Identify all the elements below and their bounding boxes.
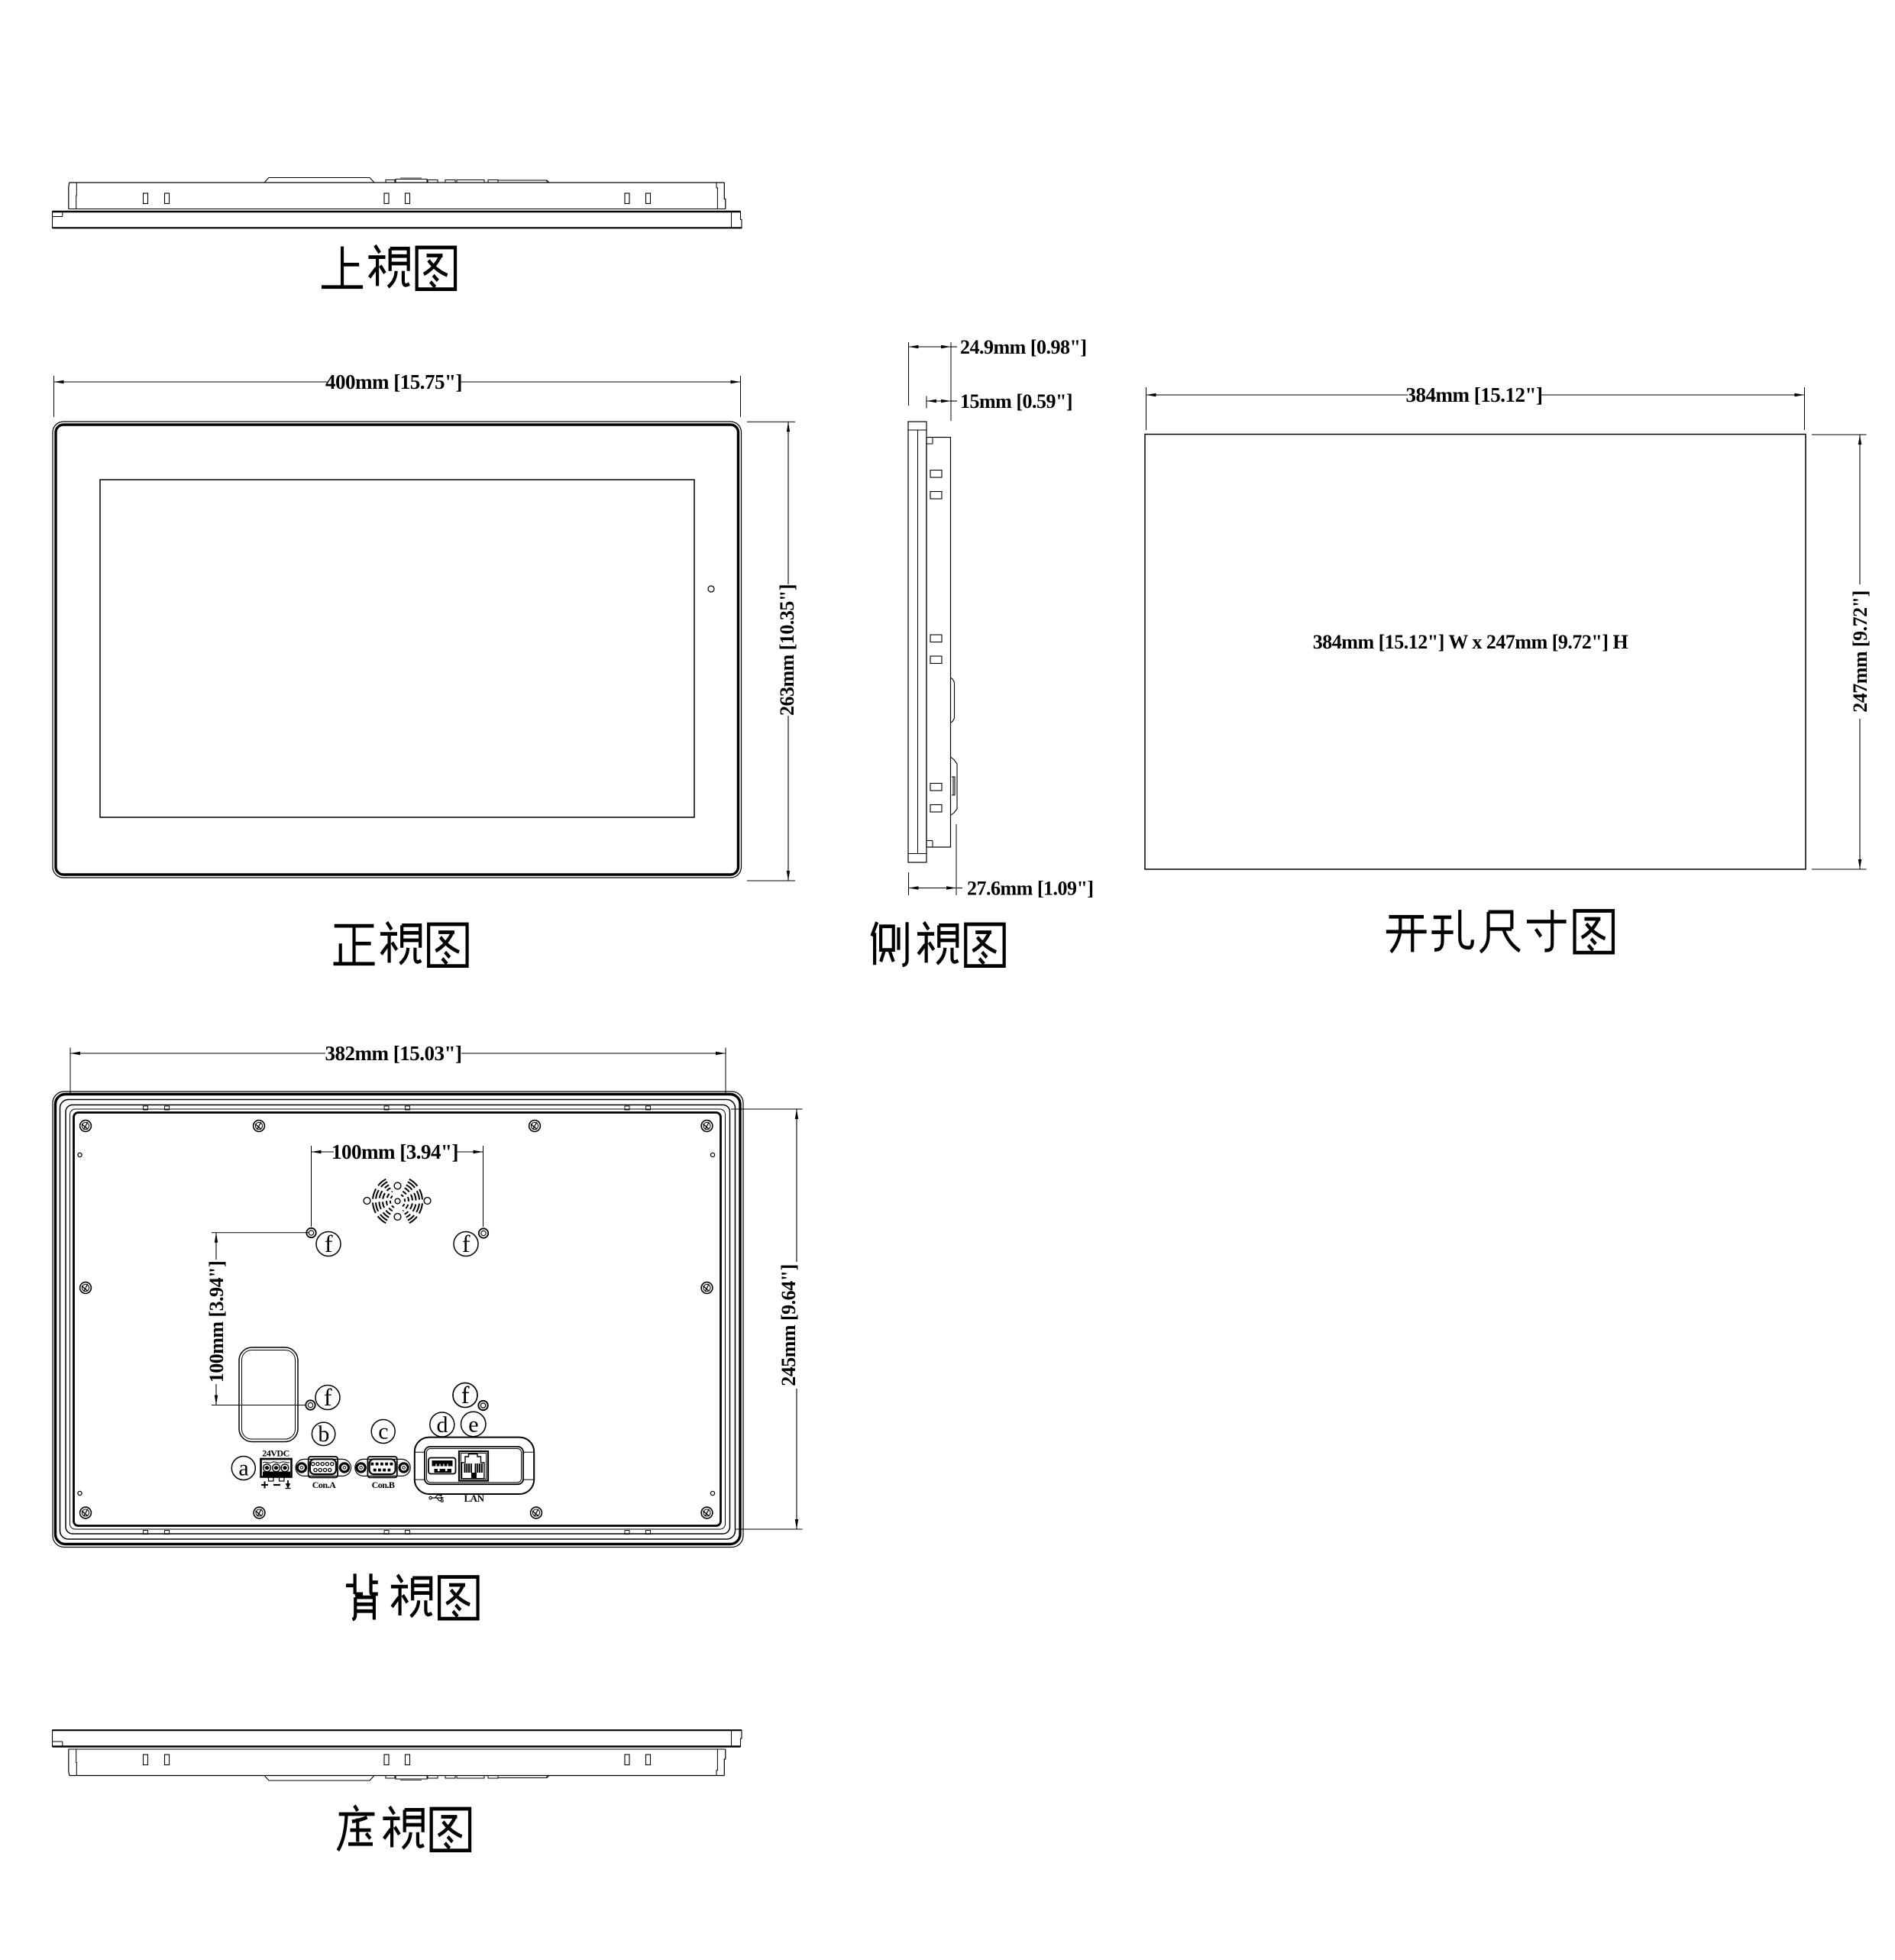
svg-text:100mm [3.94"]: 100mm [3.94"] [331, 1140, 458, 1163]
svg-text:247mm [9.72"]: 247mm [9.72"] [1849, 590, 1871, 713]
svg-text:384mm [15.12"] W x 247mm [9.72: 384mm [15.12"] W x 247mm [9.72"] H [1313, 631, 1628, 653]
svg-text:382mm [15.03"]: 382mm [15.03"] [325, 1042, 462, 1065]
svg-text:24.9mm [0.98"]: 24.9mm [0.98"] [960, 336, 1087, 358]
svg-text:f: f [324, 1383, 332, 1411]
svg-text:263mm [10.35"]: 263mm [10.35"] [776, 584, 798, 716]
svg-text:245mm [9.64"]: 245mm [9.64"] [778, 1264, 800, 1386]
svg-text:400mm [15.75"]: 400mm [15.75"] [325, 370, 462, 393]
svg-text:f: f [461, 1381, 470, 1409]
svg-text:27.6mm [1.09"]: 27.6mm [1.09"] [967, 878, 1094, 900]
svg-text:e: e [468, 1412, 478, 1438]
svg-text:Con.A: Con.A [312, 1480, 336, 1490]
svg-text:c: c [378, 1419, 388, 1444]
svg-text:15mm [0.59"]: 15mm [0.59"] [960, 390, 1072, 412]
svg-text:384mm [15.12"]: 384mm [15.12"] [1406, 383, 1543, 406]
svg-text:LAN: LAN [464, 1493, 485, 1504]
svg-text:d: d [437, 1412, 448, 1438]
svg-text:f: f [325, 1230, 333, 1257]
svg-text:Con.B: Con.B [372, 1480, 395, 1490]
svg-text:100mm [3.94"]: 100mm [3.94"] [205, 1261, 228, 1383]
svg-text:a: a [238, 1456, 248, 1481]
svg-text:f: f [462, 1230, 471, 1257]
svg-text:b: b [318, 1421, 329, 1447]
svg-text:24VDC: 24VDC [262, 1448, 289, 1459]
